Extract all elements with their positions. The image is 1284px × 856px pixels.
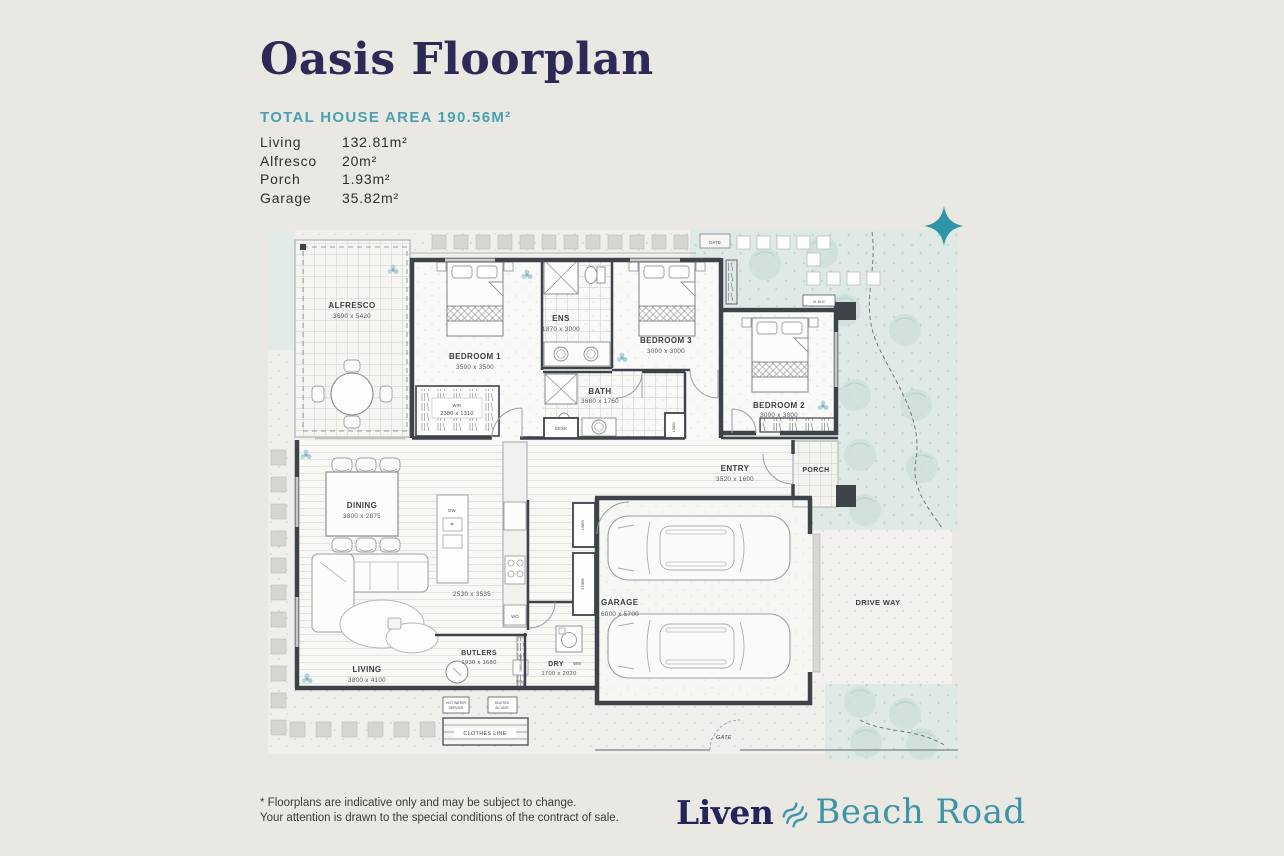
room-label-entry: ENTRY: [721, 464, 750, 473]
room-dims-dry: 1700 x 2020: [541, 671, 576, 677]
bedroom2-robe: [760, 418, 836, 432]
brand-name: Liven: [676, 793, 773, 832]
room-label-porch: PORCH: [802, 467, 829, 474]
room-label-bedroom3: BEDROOM 3: [640, 336, 692, 345]
area-row-living: Living 132.81m²: [260, 133, 654, 152]
room-dims-garage: 6000 x 5700: [601, 611, 639, 618]
floorplan-svg: ALFRESCO 3690 x 5420 BEDROOM 1 3500 x 35…: [260, 222, 960, 762]
label-clothes-line: CLOTHES LINE: [463, 731, 506, 737]
wave-icon: [781, 801, 809, 829]
room-label-bedroom2: BEDROOM 2: [753, 401, 805, 410]
room-dims-dining: 3800 x 2875: [343, 513, 381, 520]
area-value: 35.82m²: [342, 189, 399, 208]
brand-logo: Liven Beach Road: [676, 792, 1026, 832]
porch-pillar: [836, 485, 856, 507]
label-ac-2: AC UNIT: [495, 706, 509, 710]
label-hws-2: SERVICE: [449, 706, 465, 710]
label-driveway: DRIVE WAY: [855, 598, 900, 607]
room-dims-ens: 1870 x 3000: [542, 326, 580, 333]
room-dims-bedroom1: 3500 x 3500: [456, 364, 494, 371]
coffee-table-icon: [388, 618, 401, 629]
area-value: 132.81m²: [342, 133, 408, 152]
room-label-bath: BATH: [588, 387, 611, 396]
area-row-porch: Porch 1.93m²: [260, 170, 654, 189]
room-label-garage: GARAGE: [601, 598, 639, 607]
bed-bedroom2: [742, 318, 818, 392]
page-title: Oasis Floorplan: [260, 34, 654, 85]
room-dims-living: 3800 x 4100: [348, 677, 386, 684]
disclaimer-line-2: Your attention is drawn to the special c…: [260, 811, 619, 826]
area-label: Garage: [260, 189, 342, 208]
room-label-ens: ENS: [552, 314, 570, 323]
area-label: Alfresco: [260, 152, 342, 171]
bed-bedroom3: [629, 262, 705, 336]
room-label-butlers: BUTLERS: [461, 650, 497, 657]
room-label-wir: WIR: [453, 403, 462, 408]
total-area-heading: TOTAL HOUSE AREA 190.56M²: [260, 109, 654, 126]
room-dims-butlers: 1930 x 1680: [461, 660, 496, 666]
floorplan-page: Oasis Floorplan TOTAL HOUSE AREA 190.56M…: [0, 0, 1284, 856]
room-dims-alfresco: 3690 x 5420: [333, 313, 371, 320]
label-gate-bottom: GATE: [716, 735, 732, 741]
label-mbox: M. BOX: [813, 300, 826, 304]
side-robe: [726, 260, 737, 304]
car-1: [608, 516, 790, 580]
area-row-alfresco: Alfresco 20m²: [260, 152, 654, 171]
label-linen-garage: LINEN: [581, 519, 585, 530]
room-dims-wir: 2380 x 1310: [440, 411, 474, 417]
room-dims-bedroom3: 3000 x 3000: [647, 348, 685, 355]
brand-project: Beach Road: [815, 792, 1025, 832]
room-label-alfresco: ALFRESCO: [328, 301, 375, 310]
header: Oasis Floorplan TOTAL HOUSE AREA 190.56M…: [260, 34, 654, 207]
alfresco-table-icon: [331, 373, 373, 415]
room-label-bedroom1: BEDROOM 1: [449, 352, 501, 361]
area-label: Living: [260, 133, 342, 152]
disclaimer: * Floorplans are indicative only and may…: [260, 796, 619, 826]
area-row-garage: Garage 35.82m²: [260, 189, 654, 208]
label-brm: BRM: [516, 680, 524, 684]
room-label-living: LIVING: [352, 665, 381, 674]
label-ac-1: DUCTED: [495, 701, 510, 705]
room-dims-bedroom2: 3000 x 3000: [760, 412, 798, 419]
label-linen-hall: LINEN: [672, 421, 676, 432]
room-label-dining: DINING: [347, 501, 377, 510]
area-label: Porch: [260, 170, 342, 189]
label-store: STORE: [581, 577, 585, 589]
car-2: [608, 614, 790, 678]
garage-door: [813, 534, 820, 672]
floorplan-drawing: ALFRESCO 3690 x 5420 BEDROOM 1 3500 x 35…: [260, 222, 960, 762]
driveway: [812, 530, 952, 684]
disclaimer-line-1: * Floorplans are indicative only and may…: [260, 796, 619, 811]
area-value: 20m²: [342, 152, 377, 171]
label-dw: DW: [448, 508, 455, 513]
label-hws-1: HOT WATER: [446, 701, 466, 705]
bed-bedroom1: [437, 262, 513, 336]
label-wm: WM: [573, 661, 581, 666]
label-gate-top: GATE: [709, 240, 721, 245]
room-label-dry: DRY: [548, 661, 564, 668]
label-shelving: SHELVING: [519, 654, 523, 671]
label-wo: WO: [511, 614, 519, 619]
room-dims-kitchen: 2530 x 3535: [453, 591, 491, 598]
room-dims-entry: 3520 x 1600: [716, 476, 754, 483]
area-value: 1.93m²: [342, 170, 390, 189]
room-dims-bath: 3680 x 1760: [581, 398, 619, 405]
label-desk: DESK: [555, 426, 567, 431]
